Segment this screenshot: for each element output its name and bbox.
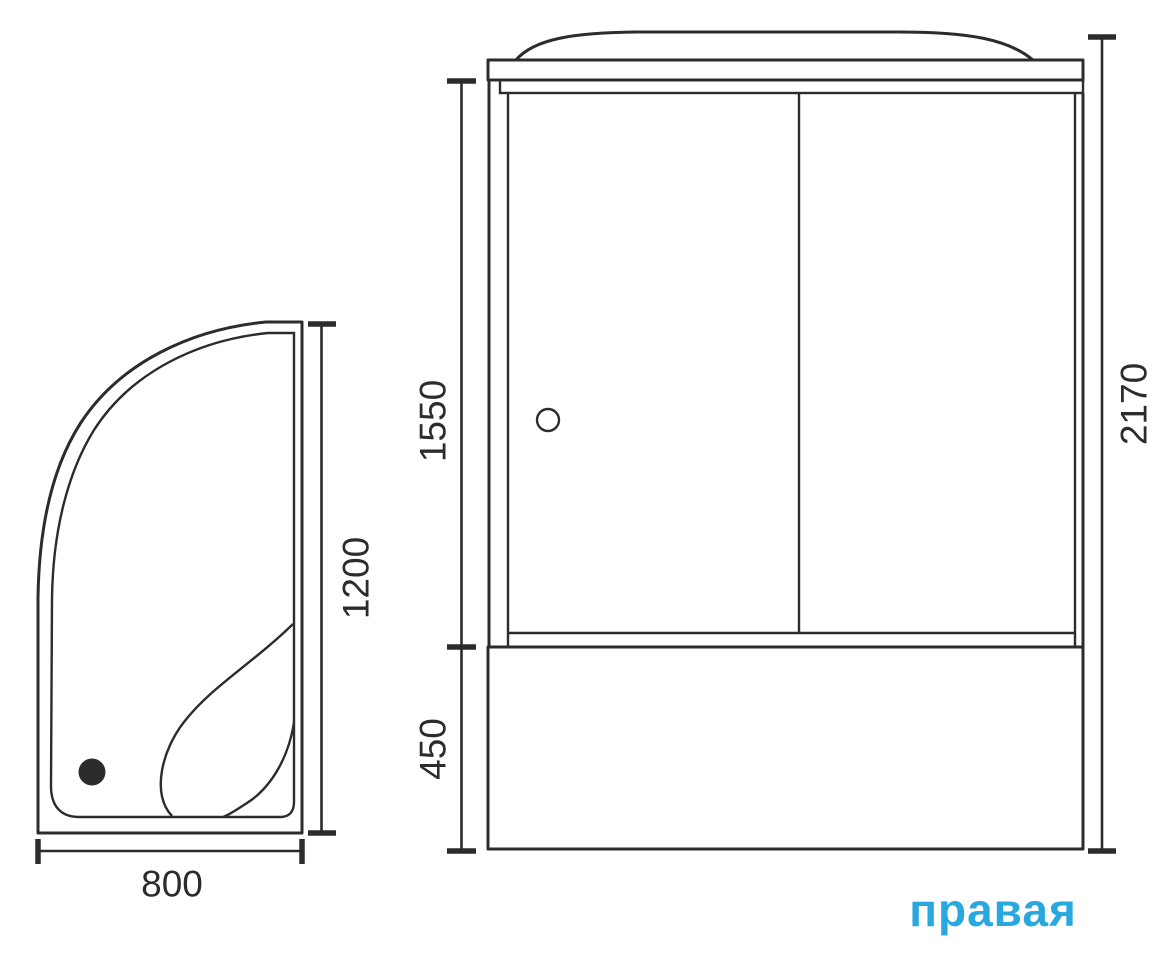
tray-outer-outline [38,322,302,833]
plan-view [38,322,302,833]
door-height-label: 1550 [413,380,454,462]
base-panel [488,647,1083,849]
basin-corner-contour [223,722,294,817]
tray-inner-rim [51,333,294,817]
front-view [488,32,1083,849]
top-door-rail [500,80,1083,93]
drain-dot [79,759,106,786]
width-dimension-label: 800 [141,864,203,905]
shower-cabin-dimension-diagram: 1200 800 1550 450 [0,0,1172,958]
door-handle [537,409,559,431]
basin-seat-contour [161,624,293,816]
total-height-label: 2170 [1114,363,1155,445]
roof-dome [516,32,1033,60]
depth-dimension-label: 1200 [336,537,377,619]
roof-frame-bar [488,60,1083,80]
base-height-label: 450 [413,718,454,780]
front-view-dimensions: 1550 450 2170 [413,37,1155,851]
technical-drawing: 1200 800 1550 450 [0,0,1172,958]
orientation-label: правая [909,884,1077,936]
